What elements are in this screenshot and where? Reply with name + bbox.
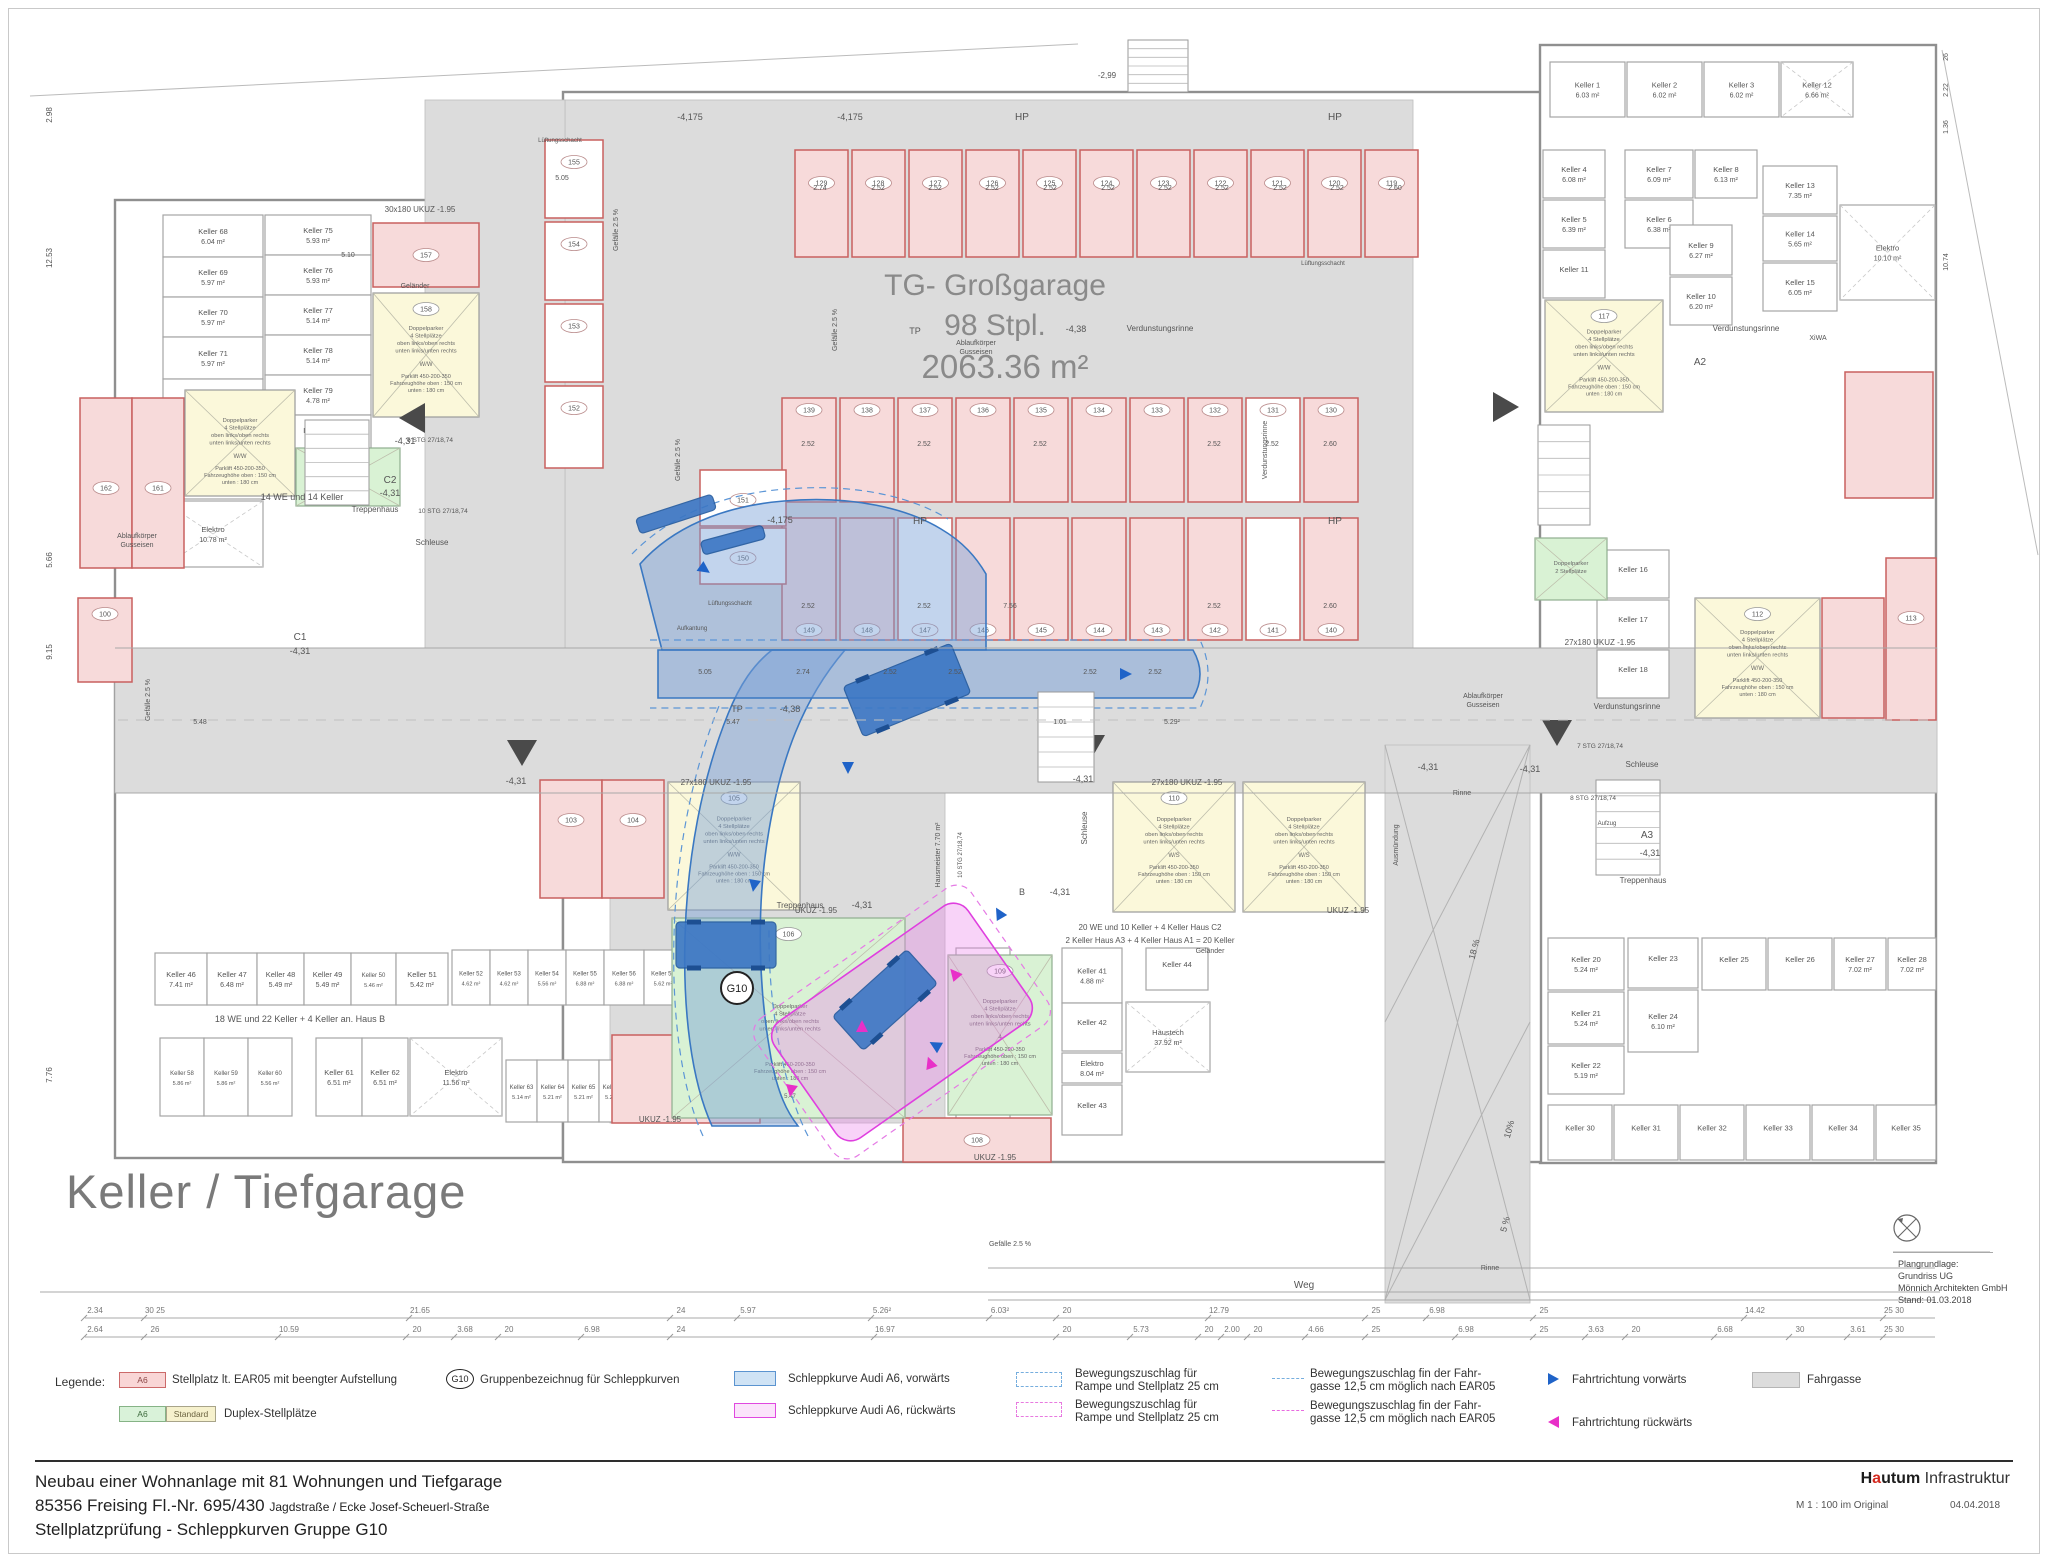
keller-room xyxy=(316,1038,362,1116)
plan-label: 2.52 xyxy=(1265,441,1279,448)
plan-label: 5.10 xyxy=(341,252,355,259)
legend-gasse-mag-l2: gasse 12,5 cm möglich nach EAR05 xyxy=(1310,1413,1495,1426)
room-area: 10.78 m² xyxy=(199,537,227,544)
parking-stall xyxy=(545,222,603,300)
room-name: Keller 25 xyxy=(1719,955,1749,964)
keller-room xyxy=(163,297,263,337)
room-name: Keller 76 xyxy=(303,266,333,275)
room-area: 6.04 m² xyxy=(201,239,225,246)
plan-label: HP xyxy=(913,516,927,527)
plan-label: -4,31 xyxy=(1418,762,1439,772)
plan-label: A2 xyxy=(1694,357,1707,368)
keller-room xyxy=(248,1038,292,1116)
plan-label: 2.52 xyxy=(1207,603,1221,610)
plan-label: 2.52 xyxy=(801,441,815,448)
room-name: Keller 32 xyxy=(1697,1124,1727,1133)
dopp-text: Parklift 450-200-350 xyxy=(1579,378,1629,384)
arrow-reverse-icon xyxy=(1548,1416,1559,1428)
keller-room xyxy=(604,950,644,1005)
room-name: Keller 24 xyxy=(1648,1012,1678,1021)
plan-label: -4,31 xyxy=(1050,887,1071,897)
legend-move-blue-l1: Bewegungszuschlag für xyxy=(1075,1368,1219,1381)
legend-gasse-mag-l1: Bewegungszuschlag fin der Fahr- xyxy=(1310,1400,1495,1413)
parking-stall xyxy=(966,150,1019,257)
parking-stall xyxy=(540,780,602,898)
plan-label: 2 Keller Haus A3 + 4 Keller Haus A1 = 20… xyxy=(1066,936,1235,945)
dopp-text: unten links/unten rechts xyxy=(1727,653,1788,659)
scalebar-value: 20 xyxy=(1632,1325,1641,1334)
plan-label: 27x180 UKUZ -1.95 xyxy=(1565,638,1636,647)
room-area: 6.03 m² xyxy=(1576,93,1600,100)
room-name: Keller 46 xyxy=(166,970,196,979)
room-area: 5.62 m² xyxy=(654,982,673,988)
legend-chip-green-a6: A6 xyxy=(119,1406,166,1422)
scalebar-value: 25 xyxy=(1540,1306,1549,1315)
plan-label: HP xyxy=(1328,516,1342,527)
room-name: Keller 59 xyxy=(214,1071,238,1077)
plan-label: 2.52 xyxy=(1083,669,1097,676)
dopp-number: 110 xyxy=(1168,796,1179,803)
room-area: 5.86 m² xyxy=(217,1081,236,1087)
scalebar-value: 6.03² xyxy=(991,1306,1010,1315)
keller-room xyxy=(1548,938,1624,990)
dopp-text: Fahrzeughöhe oben : 150 cm xyxy=(1722,685,1794,691)
keller-room xyxy=(1670,225,1732,275)
keller-room xyxy=(1834,938,1886,990)
dopp-text: Doppelparker xyxy=(1157,817,1192,823)
room-area: 7.02 m² xyxy=(1848,967,1872,974)
legend-chip-pink-a6: A6 xyxy=(119,1372,166,1388)
dopp-text: oben links/oben rechts xyxy=(211,433,269,439)
plan-label: B xyxy=(1019,887,1025,897)
parking-stall xyxy=(1308,150,1361,257)
keller-room xyxy=(265,215,371,255)
plan-label: Lüftungsschacht xyxy=(538,138,582,144)
keller-room xyxy=(568,1060,599,1122)
parking-stall xyxy=(1194,150,1247,257)
scalebar-value: 20 xyxy=(413,1325,422,1334)
plan-label: 27x180 UKUZ -1.95 xyxy=(681,778,752,787)
keller-room xyxy=(304,953,351,1005)
plan-title: Keller / Tiefgarage xyxy=(66,1164,466,1219)
plan-label: 2.60 xyxy=(1388,185,1402,192)
plan-label: -2,99 xyxy=(1098,71,1117,80)
dopp-text: unten : 180 cm xyxy=(1156,879,1193,885)
brand-h: H xyxy=(1861,1470,1873,1487)
room-name: Keller 69 xyxy=(198,268,228,277)
room-name: Keller 15 xyxy=(1785,278,1815,287)
dopp-text: unten links/unten rechts xyxy=(1573,352,1634,358)
dopp-text: unten links/unten rechts xyxy=(1273,840,1334,846)
room-name: Keller 77 xyxy=(303,306,333,315)
room-area: 6.09 m² xyxy=(1647,177,1671,184)
dopp-number: 117 xyxy=(1598,314,1609,321)
stall-number: 135 xyxy=(1035,408,1047,415)
keller-room xyxy=(1548,992,1624,1044)
room-name: Keller 17 xyxy=(1618,615,1648,624)
stall-number: 154 xyxy=(568,242,580,249)
scalebar-value: 6.68 xyxy=(1717,1325,1733,1334)
keller-room xyxy=(204,1038,248,1116)
plan-label: Gefälle 2.5 % xyxy=(832,309,839,351)
dopp-text: 4 Stellplätze xyxy=(1588,337,1620,343)
legend-fahrgasse-label: Fahrgasse xyxy=(1807,1374,1861,1386)
legend-chip-move-mag xyxy=(1016,1402,1062,1417)
room-area: 6.66 m² xyxy=(1805,93,1829,100)
plan-label: Gefälle 2.5 % xyxy=(145,679,152,721)
address-street: Jagdstraße / Ecke Josef-Scheuerl-Straße xyxy=(269,1500,489,1514)
scalebar-value: 6.98 xyxy=(584,1325,600,1334)
plan-label: Ablaufkörper xyxy=(117,533,157,540)
room-area: 7.35 m² xyxy=(1788,193,1812,200)
plan-label: 27x180 UKUZ -1.95 xyxy=(1152,778,1223,787)
parking-stall xyxy=(1845,372,1933,498)
legend-chip-fahrgasse xyxy=(1752,1372,1800,1388)
legend-pink-label: Stellplatz lt. EAR05 mit beengter Aufste… xyxy=(172,1374,397,1386)
plan-label: C2 xyxy=(384,475,397,486)
room-name: Keller 44 xyxy=(1162,960,1192,969)
scalebar-value: 24 xyxy=(677,1306,686,1315)
plan-note-line4: Stand: 01.03.2018 xyxy=(1898,1294,2008,1306)
keller-room xyxy=(1763,166,1837,214)
room-name: Keller 64 xyxy=(541,1085,565,1091)
plan-label: 7 STG 27/18,74 xyxy=(1577,743,1623,750)
plan-label: 2.52 xyxy=(1215,185,1229,192)
room-area: 5.56 m² xyxy=(538,982,557,988)
keller-room xyxy=(1768,938,1832,990)
dopp-text: 4 Stellplätze xyxy=(410,334,442,340)
dopp-number: 112 xyxy=(1752,612,1763,619)
dopp-text: unten : 180 cm xyxy=(408,388,445,394)
keller-room xyxy=(1680,1105,1744,1160)
plan-label: Verdunstungsrinne xyxy=(1127,324,1194,333)
plan-label: -4,38 xyxy=(780,704,801,714)
plan-label: Hausmeister 7.70 m² xyxy=(935,822,942,888)
legend-duplex-label: Duplex-Stellplätze xyxy=(224,1408,317,1420)
footer-divider xyxy=(35,1460,2013,1462)
room-area: 7.02 m² xyxy=(1900,967,1924,974)
stall-number: 142 xyxy=(1209,628,1221,635)
room-name: Keller 30 xyxy=(1565,1124,1595,1133)
plan-label: Lüftungsschacht xyxy=(1301,261,1345,267)
stall-number: 145 xyxy=(1035,628,1047,635)
keller-room xyxy=(207,953,257,1005)
room-name: Keller 1 xyxy=(1575,81,1600,90)
room-name: Keller 35 xyxy=(1891,1124,1921,1133)
parking-stall xyxy=(1365,150,1418,257)
dopp-text: oben links/oben rechts xyxy=(1275,832,1333,838)
dopp-variant: W/S xyxy=(1168,853,1179,859)
scalebar-value: 2.64 xyxy=(87,1325,103,1334)
legend-gasse-blue-l2: gasse 12,5 cm möglich nach EAR05 xyxy=(1310,1381,1495,1394)
scalebar-value: 10.59 xyxy=(279,1325,300,1334)
plan-label: -4,31 xyxy=(380,488,401,498)
scalebar-value: 25 30 xyxy=(1884,1325,1905,1334)
vehicle-wheel xyxy=(687,920,701,925)
room-name: Keller 26 xyxy=(1785,955,1815,964)
dopp-text: Doppelparker xyxy=(1587,330,1622,336)
legend-dashline-blue xyxy=(1272,1378,1304,1379)
room-name: Keller 23 xyxy=(1648,954,1678,963)
room-name: Keller 6 xyxy=(1646,215,1671,224)
room-name: Keller 49 xyxy=(313,970,343,979)
room-area: 4.88 m² xyxy=(1080,979,1104,986)
room-name: Keller 28 xyxy=(1897,955,1927,964)
room-area: 6.38 m² xyxy=(1647,227,1671,234)
dopp-text: Doppelparker xyxy=(1287,817,1322,823)
stall-number: 143 xyxy=(1151,628,1163,635)
room-area: 6.02 m² xyxy=(1653,93,1677,100)
room-name: Keller 4 xyxy=(1561,165,1586,174)
plan-label: Ablaufkörper xyxy=(1463,693,1503,700)
legend-move-mag-label: Bewegungszuschlag für Rampe und Stellpla… xyxy=(1075,1399,1219,1425)
keller-room xyxy=(1695,150,1757,198)
legend-chip-standard: Standard xyxy=(166,1406,216,1422)
keller-room xyxy=(1062,1003,1122,1051)
vehicle-wheel xyxy=(751,920,765,925)
vehicle-wheel xyxy=(751,966,765,971)
dopp-text: Fahrzeughöhe oben : 150 cm xyxy=(1268,872,1340,878)
room-area: 6.51 m² xyxy=(373,1080,397,1087)
room-area: 6.39 m² xyxy=(1562,227,1586,234)
plan-label: 14 WE und 14 Keller xyxy=(261,492,344,502)
scalebar-value: 5.26² xyxy=(873,1306,892,1315)
dopp-text: unten : 180 cm xyxy=(1739,692,1776,698)
keller-room xyxy=(351,953,396,1005)
plan-label: 1.01 xyxy=(1053,719,1067,726)
plan-label: 2.52 xyxy=(1158,185,1172,192)
dopp-text: Doppelparker xyxy=(1554,561,1589,567)
legend-chip-move-blue xyxy=(1016,1372,1062,1387)
keller-room xyxy=(1062,1085,1122,1135)
plan-label: 2.52 xyxy=(917,603,931,610)
scalebar-value: 20 xyxy=(1205,1325,1214,1334)
parking-stall xyxy=(1188,518,1242,640)
dopp-text: 4 Stellplätze xyxy=(1742,638,1774,644)
g10-group-icon: G10 xyxy=(446,1369,474,1389)
room-name: Keller 3 xyxy=(1729,81,1754,90)
brand-a: a xyxy=(1872,1470,1881,1487)
plan-label: Gefälle 2.5 % xyxy=(675,439,682,481)
plan-label: 8 STG 27/18,74 xyxy=(1570,795,1616,802)
keller-room xyxy=(155,953,207,1005)
room-name: Keller 53 xyxy=(497,972,521,978)
scalebar-value: 20 xyxy=(505,1325,514,1334)
room-name: Keller 60 xyxy=(258,1071,282,1077)
plan-label: Weg xyxy=(1294,1280,1314,1291)
legend-gasse-mag-label: Bewegungszuschlag fin der Fahr- gasse 12… xyxy=(1310,1400,1495,1426)
keller-room xyxy=(506,1060,537,1122)
plan-label: 98 Stpl. xyxy=(944,309,1046,342)
scalebar-value: 25 30 xyxy=(1884,1306,1905,1315)
parking-stall xyxy=(1072,518,1126,640)
plan-label: 2.98 xyxy=(45,107,54,123)
room-area: 6.02 m² xyxy=(1730,93,1754,100)
plan-label: Gefälle 2.5 % xyxy=(989,1241,1031,1248)
keller-room xyxy=(1597,550,1669,598)
legend-move-mag-l1: Bewegungszuschlag für xyxy=(1075,1399,1219,1412)
room-name: Keller 10 xyxy=(1686,292,1716,301)
site-boundary-line xyxy=(1942,50,2038,555)
dopp-text: Doppelparker xyxy=(223,418,258,424)
room-area: 5.21 m² xyxy=(543,1095,562,1101)
stall-number: 157 xyxy=(420,253,432,260)
room-area: 37.92 m² xyxy=(1154,1040,1182,1047)
keller-room xyxy=(1597,650,1669,698)
stall-number: 144 xyxy=(1093,628,1105,635)
plan-label: Geländer xyxy=(1196,948,1225,955)
dopp-text: unten : 180 cm xyxy=(982,1061,1019,1067)
legend-gasse-blue-label: Bewegungszuschlag fin der Fahr- gasse 12… xyxy=(1310,1368,1495,1394)
plan-label: 2.52 xyxy=(1101,185,1115,192)
dopp-text: unten links/unten rechts xyxy=(1143,840,1204,846)
room-area: 6.05 m² xyxy=(1788,290,1812,297)
scalebar-value: 20 xyxy=(1063,1306,1072,1315)
plan-label: 5.66 xyxy=(45,552,54,568)
scalebar-value: 14.42 xyxy=(1745,1306,1766,1315)
plan-label: Aufzug xyxy=(1598,821,1617,827)
plan-label: 12.53 xyxy=(45,247,54,268)
stall-number: 100 xyxy=(99,612,111,619)
north-symbol-icon xyxy=(1898,1218,1903,1223)
scalebar-value: 16.97 xyxy=(875,1325,896,1334)
plan-label: 2.60 xyxy=(1323,603,1337,610)
scalebar-value: 25 xyxy=(1372,1306,1381,1315)
room-name: Keller 62 xyxy=(370,1068,400,1077)
room-name: Keller 55 xyxy=(573,972,597,978)
plan-label: 10 STG 27/18,74 xyxy=(958,831,964,877)
plan-label: 2.52 xyxy=(985,185,999,192)
room-name: Keller 75 xyxy=(303,226,333,235)
plan-label: HP xyxy=(1328,112,1342,123)
plan-label: HP xyxy=(1015,112,1029,123)
room-name: Keller 51 xyxy=(407,970,437,979)
dopp-text: Parklift 450-200-350 xyxy=(401,374,451,380)
room-name: Haustech xyxy=(1152,1028,1184,1037)
room-name: Elektro xyxy=(201,525,224,534)
plan-label: C1 xyxy=(294,632,307,643)
project-address: 85356 Freising Fl.-Nr. 695/430 Jagdstraß… xyxy=(35,1496,489,1516)
room-area: 5.93 m² xyxy=(306,238,330,245)
stall-number: 138 xyxy=(861,408,873,415)
room-area: 5.56 m² xyxy=(261,1081,280,1087)
plan-label: 9.15 xyxy=(45,644,54,660)
plan-label: Rinne xyxy=(1481,1265,1499,1272)
plan-label: 2.52 xyxy=(871,185,885,192)
plan-label: Treppenhaus xyxy=(352,505,399,514)
plan-label: 2.52 xyxy=(1273,185,1287,192)
room-area: 5.14 m² xyxy=(306,358,330,365)
keller-room xyxy=(163,257,263,297)
plan-label: Schleuse xyxy=(1080,811,1089,844)
dopp-text: oben links/oben rechts xyxy=(1145,832,1203,838)
plan-label: Treppenhaus xyxy=(777,901,824,910)
plan-label: Gefälle 2.5 % xyxy=(613,209,620,251)
drawing-date: 04.04.2018 xyxy=(1950,1500,2000,1511)
parking-stall xyxy=(1886,558,1936,720)
plan-label: 2.60 xyxy=(1323,441,1337,448)
dopp-variant: W/W xyxy=(1751,666,1764,672)
keller-room xyxy=(566,950,604,1005)
plan-label: 5.48 xyxy=(193,719,207,726)
room-area: 6.88 m² xyxy=(615,982,634,988)
stall-number: 151 xyxy=(737,498,749,505)
room-area: 6.48 m² xyxy=(220,982,244,989)
stall-number: 162 xyxy=(100,486,112,493)
plan-label: -4,31 xyxy=(290,646,311,656)
keller-room xyxy=(1543,150,1605,198)
dopp-text: 4 Stellplätze xyxy=(1288,825,1320,831)
stall-number: 141 xyxy=(1267,628,1279,635)
scalebar-value: 3.68 xyxy=(457,1325,473,1334)
plan-label: -4,31 xyxy=(506,776,527,786)
parking-stall xyxy=(1023,150,1076,257)
parking-stall xyxy=(545,304,603,382)
legend-dashline-mag xyxy=(1272,1410,1304,1411)
plan-note: Plangrundlage: Grundriss UG Mönnich Arch… xyxy=(1898,1258,2008,1306)
plan-label: 5.47 xyxy=(726,719,740,726)
plan-label: 2.52 xyxy=(1330,185,1344,192)
plan-label: Gusseisen xyxy=(1466,702,1499,709)
stall-number: 108 xyxy=(971,1138,983,1145)
dopp-text: Fahrzeughöhe oben : 150 cm xyxy=(390,381,462,387)
room-area: 5.24 m² xyxy=(1574,967,1598,974)
keller-room xyxy=(1625,150,1693,198)
keller-room xyxy=(490,950,528,1005)
room-name: Keller 41 xyxy=(1077,967,1107,976)
room-area: 4.78 m² xyxy=(306,398,330,405)
keller-room xyxy=(1812,1105,1874,1160)
plan-label: 26 xyxy=(1943,53,1950,61)
scalebar-value: 2.34 xyxy=(87,1306,103,1315)
parking-stall xyxy=(1251,150,1304,257)
plan-label: Aufkantung xyxy=(677,626,707,632)
parking-stall xyxy=(1822,598,1884,718)
project-title: Neubau einer Wohnanlage mit 81 Wohnungen… xyxy=(35,1472,502,1492)
plan-label: UKUZ -1.95 xyxy=(1327,906,1370,915)
room-name: Keller 22 xyxy=(1571,1061,1601,1070)
plan-label: Treppenhaus xyxy=(1620,876,1667,885)
room-area: 5.19 m² xyxy=(1574,1073,1598,1080)
legend-gasse-blue-l1: Bewegungszuschlag fin der Fahr- xyxy=(1310,1368,1495,1381)
plan-label: -4,31 xyxy=(852,900,873,910)
room-area: 4.62 m² xyxy=(462,982,481,988)
stall-number: 103 xyxy=(565,818,577,825)
scalebar-value: 25 xyxy=(1540,1325,1549,1334)
room-area: 5.49 m² xyxy=(269,982,293,989)
room-name: Keller 33 xyxy=(1763,1124,1793,1133)
scalebar-value: 30 xyxy=(1796,1325,1805,1334)
scalebar-value: 30 25 xyxy=(145,1306,166,1315)
dopp-text: unten links/unten rechts xyxy=(209,440,270,446)
legend-g10-label: Gruppenbezeichnug für Schleppkurven xyxy=(480,1374,679,1386)
room-area: 5.42 m² xyxy=(410,982,434,989)
g10-marker-label: G10 xyxy=(727,983,748,995)
stall-number: 140 xyxy=(1325,628,1337,635)
company-logo: Hautum Infrastruktur xyxy=(1861,1470,2010,1488)
keller-room xyxy=(410,1038,502,1116)
plan-label: 20 WE und 10 Keller + 4 Keller Haus C2 xyxy=(1079,923,1223,932)
room-name: Keller 56 xyxy=(612,972,636,978)
scalebar-value: 3.63 xyxy=(1588,1325,1604,1334)
plan-label: Rinne xyxy=(1453,790,1471,797)
keller-room xyxy=(396,953,448,1005)
scalebar-value: 12.79 xyxy=(1209,1306,1230,1315)
vehicle-body xyxy=(676,922,776,968)
legend-curve-fwd-label: Schleppkurve Audi A6, vorwärts xyxy=(788,1373,950,1385)
keller-room xyxy=(1548,1105,1612,1160)
plan-label: 5.29² xyxy=(1164,719,1181,726)
